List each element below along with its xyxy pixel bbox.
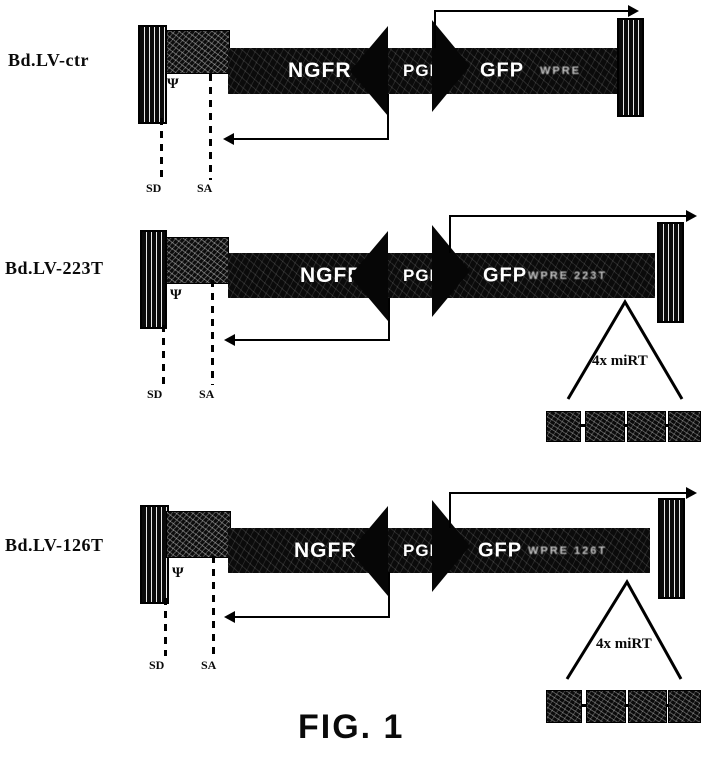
mirt-box-1 <box>546 690 582 723</box>
construct-bdlv-126t: Bd.LV-126T Ψ SD SA NGFR PGK GFP WPRE 126… <box>0 480 706 742</box>
construct-label: Bd.LV-ctr <box>8 50 89 71</box>
sd-label: SD <box>147 387 162 402</box>
sd-label: SD <box>149 658 164 673</box>
figure-caption: FIG. 1 <box>298 708 404 747</box>
transcript-arrow-bottom-riser <box>388 572 390 618</box>
construct-label: Bd.LV-126T <box>5 535 104 556</box>
transcript-arrow-bottom-line <box>233 339 390 341</box>
arrowhead-left-icon <box>224 611 235 623</box>
construct-bdlv-ctr: Bd.LV-ctr Ψ SD SA NGFR PGK GFP WPRE <box>0 0 706 205</box>
wpre-label: WPRE <box>540 65 581 77</box>
psi-symbol: Ψ <box>170 287 182 304</box>
transcript-arrow-bottom-riser <box>387 94 389 140</box>
mirt-box-1 <box>546 411 581 442</box>
construct-label: Bd.LV-223T <box>5 258 104 279</box>
mirt-box-3 <box>628 690 667 723</box>
transcript-arrow-top-riser <box>434 10 436 48</box>
mirt-count-label: 4x miRT <box>592 353 648 370</box>
arrowhead-right-icon <box>628 5 639 17</box>
arrowhead-left-icon <box>223 133 234 145</box>
wpre-target-label: WPRE 223T <box>528 270 607 282</box>
mirt-box-2 <box>585 411 625 442</box>
mirt-callout-triangle <box>555 578 695 683</box>
transcript-arrow-top-riser <box>449 492 451 528</box>
sa-label: SA <box>197 181 212 196</box>
patent-figure: Bd.LV-ctr Ψ SD SA NGFR PGK GFP WPRE Bd.L… <box>0 0 706 759</box>
arrowhead-right-icon <box>686 487 697 499</box>
ltr-left-box <box>138 25 167 124</box>
splice-acceptor-line <box>211 280 214 385</box>
psi-symbol: Ψ <box>167 76 179 93</box>
ngfr-label: NGFR <box>294 539 358 563</box>
mirt-box-4 <box>668 411 701 442</box>
sa-label: SA <box>199 387 214 402</box>
splice-donor-line <box>160 118 163 180</box>
ltr-right-box <box>617 18 644 117</box>
sd-label: SD <box>146 181 161 196</box>
wpre-target-label: WPRE 126T <box>528 545 607 557</box>
ngfr-label: NGFR <box>288 59 352 83</box>
promoter-arrow-left-icon <box>350 231 388 321</box>
psi-region-box <box>166 30 230 74</box>
vector-cassette-bar: NGFR PGK GFP WPRE <box>228 48 618 94</box>
mirt-callout-triangle <box>555 298 695 403</box>
mirt-count-label: 4x miRT <box>596 636 652 653</box>
splice-acceptor-line <box>209 74 212 180</box>
transcript-arrow-top-riser <box>449 215 451 253</box>
psi-region-box <box>166 511 231 558</box>
mirt-box-4 <box>668 690 701 723</box>
transcript-arrow-bottom-riser <box>388 298 390 341</box>
transcript-arrow-bottom-line <box>232 138 389 140</box>
promoter-arrow-left-icon <box>350 506 388 596</box>
gfp-label: GFP <box>478 539 522 562</box>
promoter-arrow-right-icon <box>432 225 470 317</box>
splice-acceptor-line <box>212 556 215 656</box>
promoter-arrow-right-icon <box>432 500 470 592</box>
transcript-arrow-top-line <box>434 10 632 12</box>
psi-symbol: Ψ <box>172 565 184 582</box>
gfp-label: GFP <box>480 60 524 83</box>
ltr-left-box <box>140 505 169 604</box>
transcript-arrow-top-line <box>449 492 690 494</box>
sa-label: SA <box>201 658 216 673</box>
splice-donor-line <box>164 598 167 656</box>
transcript-arrow-top-line <box>449 215 690 217</box>
arrowhead-right-icon <box>686 210 697 222</box>
promoter-arrow-right-icon <box>432 20 470 112</box>
splice-donor-line <box>162 325 165 385</box>
ltr-left-box <box>140 230 167 329</box>
promoter-arrow-left-icon <box>350 26 388 116</box>
mirt-box-2 <box>586 690 626 723</box>
psi-region-box <box>166 237 229 284</box>
transcript-arrow-bottom-line <box>233 616 390 618</box>
gfp-label: GFP <box>483 264 527 287</box>
arrowhead-left-icon <box>224 334 235 346</box>
construct-bdlv-223t: Bd.LV-223T Ψ SD SA NGFR PGK GFP WPRE 223… <box>0 205 706 450</box>
mirt-box-3 <box>627 411 666 442</box>
